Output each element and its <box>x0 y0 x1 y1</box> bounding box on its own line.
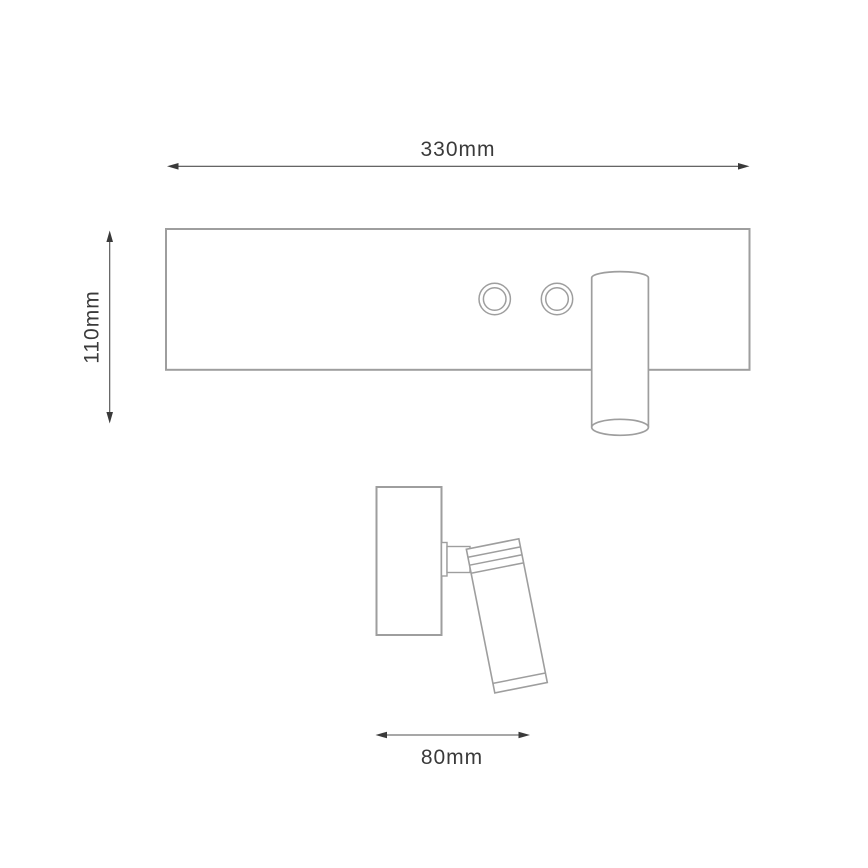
drawing-canvas: 330mm 110mm <box>0 0 868 868</box>
wall-light-technical-drawing: 330mm 110mm <box>0 0 868 868</box>
arrowhead-right-icon <box>738 163 750 170</box>
wall-plate-side <box>377 487 442 635</box>
dimension-width: 330mm <box>167 138 750 170</box>
dimension-height-label: 110mm <box>81 290 104 363</box>
spotlight-tube-body <box>592 272 649 436</box>
arrowhead-down-icon <box>106 412 113 424</box>
dimension-width-label: 330mm <box>420 138 495 161</box>
arrowhead-up-icon <box>106 231 113 243</box>
wall-plate-front <box>166 229 750 370</box>
arrowhead-left-icon <box>167 163 179 170</box>
dimension-height: 110mm <box>81 231 113 424</box>
arrowhead-right-icon <box>519 732 531 739</box>
arrowhead-left-icon <box>376 732 388 739</box>
dimension-depth-label: 80mm <box>421 746 483 769</box>
spotlight-tube-front <box>592 272 649 436</box>
dimension-depth: 80mm <box>376 732 531 769</box>
spotlight-head-tilted <box>466 539 547 693</box>
side-view <box>377 487 548 693</box>
spotlight-head-body <box>466 539 547 693</box>
pivot-mount <box>442 543 448 577</box>
front-view <box>166 229 750 435</box>
